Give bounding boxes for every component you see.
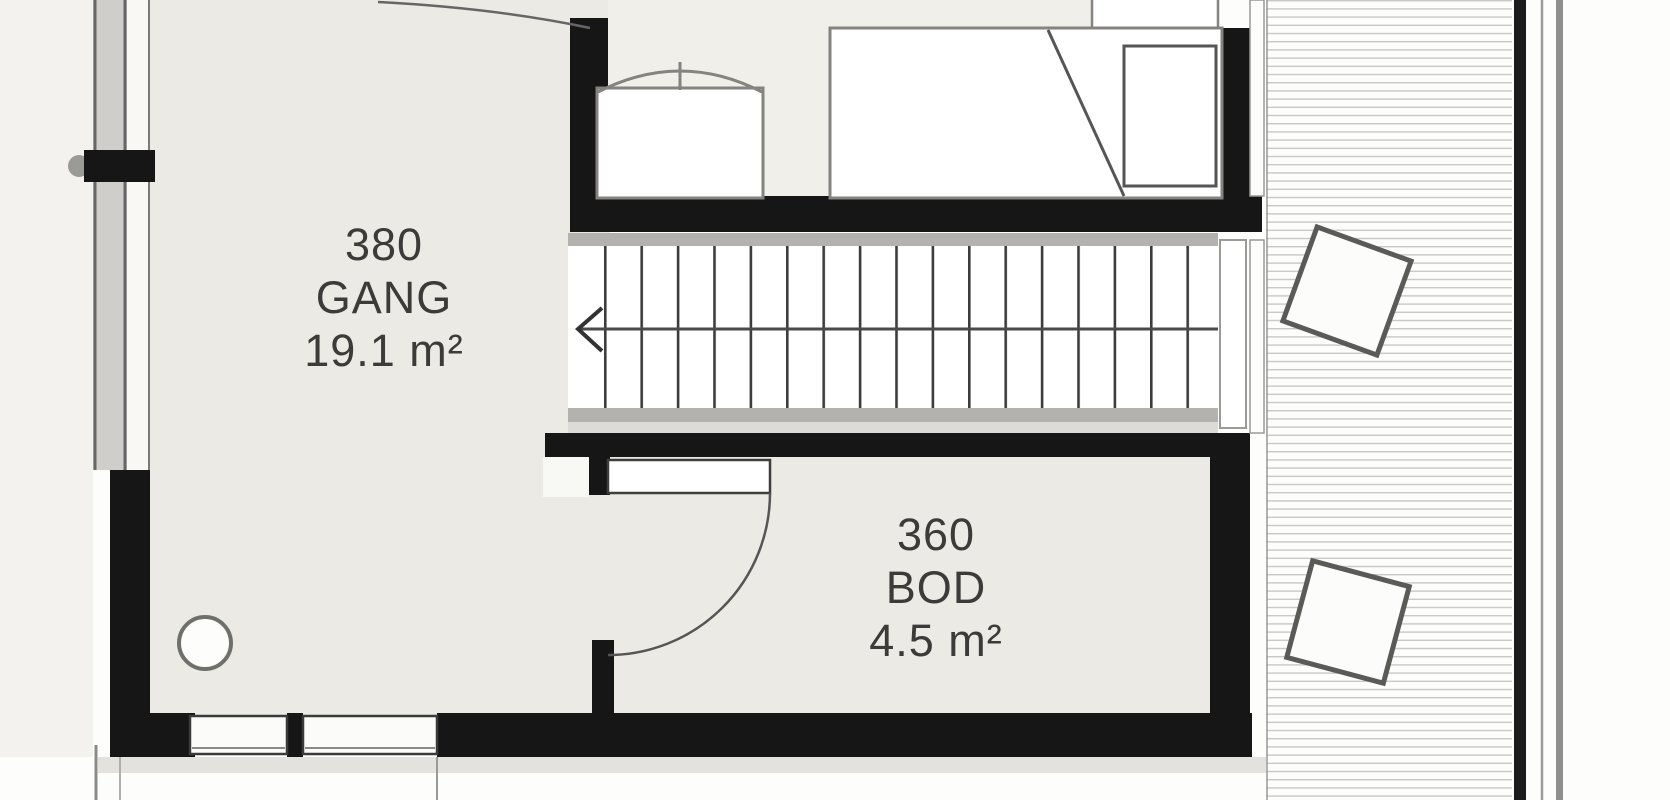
floor-plan-drawing [0,0,1670,800]
wall-left-mullion [84,150,155,182]
exterior-sill-band [98,757,1266,773]
bod-door-jamb-top [587,455,610,495]
terrace-railing-edge-band [1556,0,1563,800]
bod-door-leaf [608,460,770,493]
bed-pillow [1124,46,1216,186]
left-window-sill [127,0,150,470]
floor-drain-circle [179,617,231,669]
terrace-table-2 [1287,561,1409,683]
bod-room-floor [150,457,1210,715]
stair-landing-window [1220,240,1246,428]
left-window-glazing [93,0,127,470]
wall-left-exterior [110,470,150,740]
wall-bod-right [1210,433,1250,757]
right-facade-strip-lower [1250,240,1264,433]
wall-bottom-left-corner [110,713,195,757]
chair [597,88,763,198]
wall-above-stairs [570,196,1262,232]
bod-door-threshold [543,457,589,497]
terrace-railing-outer [1514,0,1526,800]
nightstand [1092,0,1218,28]
floor-plan: 380 GANG 19.1 m² 360 BOD 4.5 m² [0,0,1670,800]
wall-below-stairs [545,433,1215,457]
right-facade-strip-upper [1250,0,1264,196]
stair-bottom-edge [568,422,1218,433]
exterior-left-ground [0,0,93,757]
bod-door-jamb-bottom [592,640,614,713]
wall-bottom-window-mullion [287,713,303,757]
wall-bottom-exterior [437,713,1252,757]
stair-treads [604,246,1218,408]
terrace-decking-hatch [1266,0,1512,800]
stair-bottom-stringer [568,408,1218,422]
stair-top-stringer [568,233,1218,246]
